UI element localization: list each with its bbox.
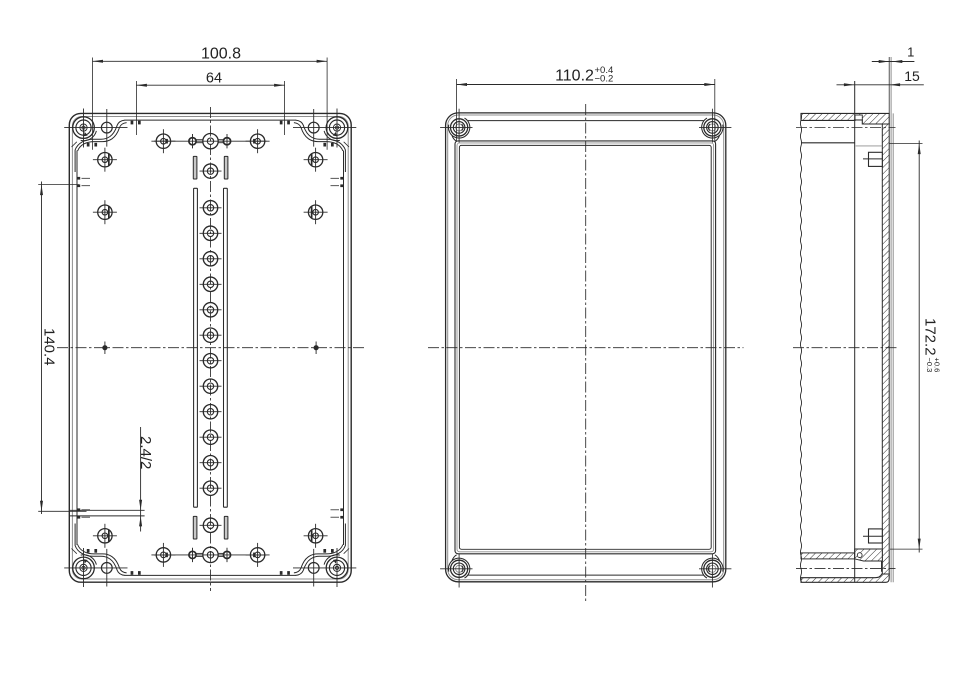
svg-text:100.8: 100.8	[201, 46, 241, 63]
svg-text:15: 15	[904, 68, 920, 84]
svg-text:1: 1	[907, 45, 914, 60]
svg-text:172.2: 172.2	[922, 318, 939, 356]
svg-text:64: 64	[206, 71, 222, 87]
svg-text:140.4: 140.4	[41, 328, 58, 366]
svg-text:110.2: 110.2	[555, 67, 594, 84]
svg-text:2.4/2: 2.4/2	[137, 436, 154, 469]
svg-text:−0.3: −0.3	[925, 358, 934, 373]
svg-text:−0.2: −0.2	[595, 73, 614, 84]
